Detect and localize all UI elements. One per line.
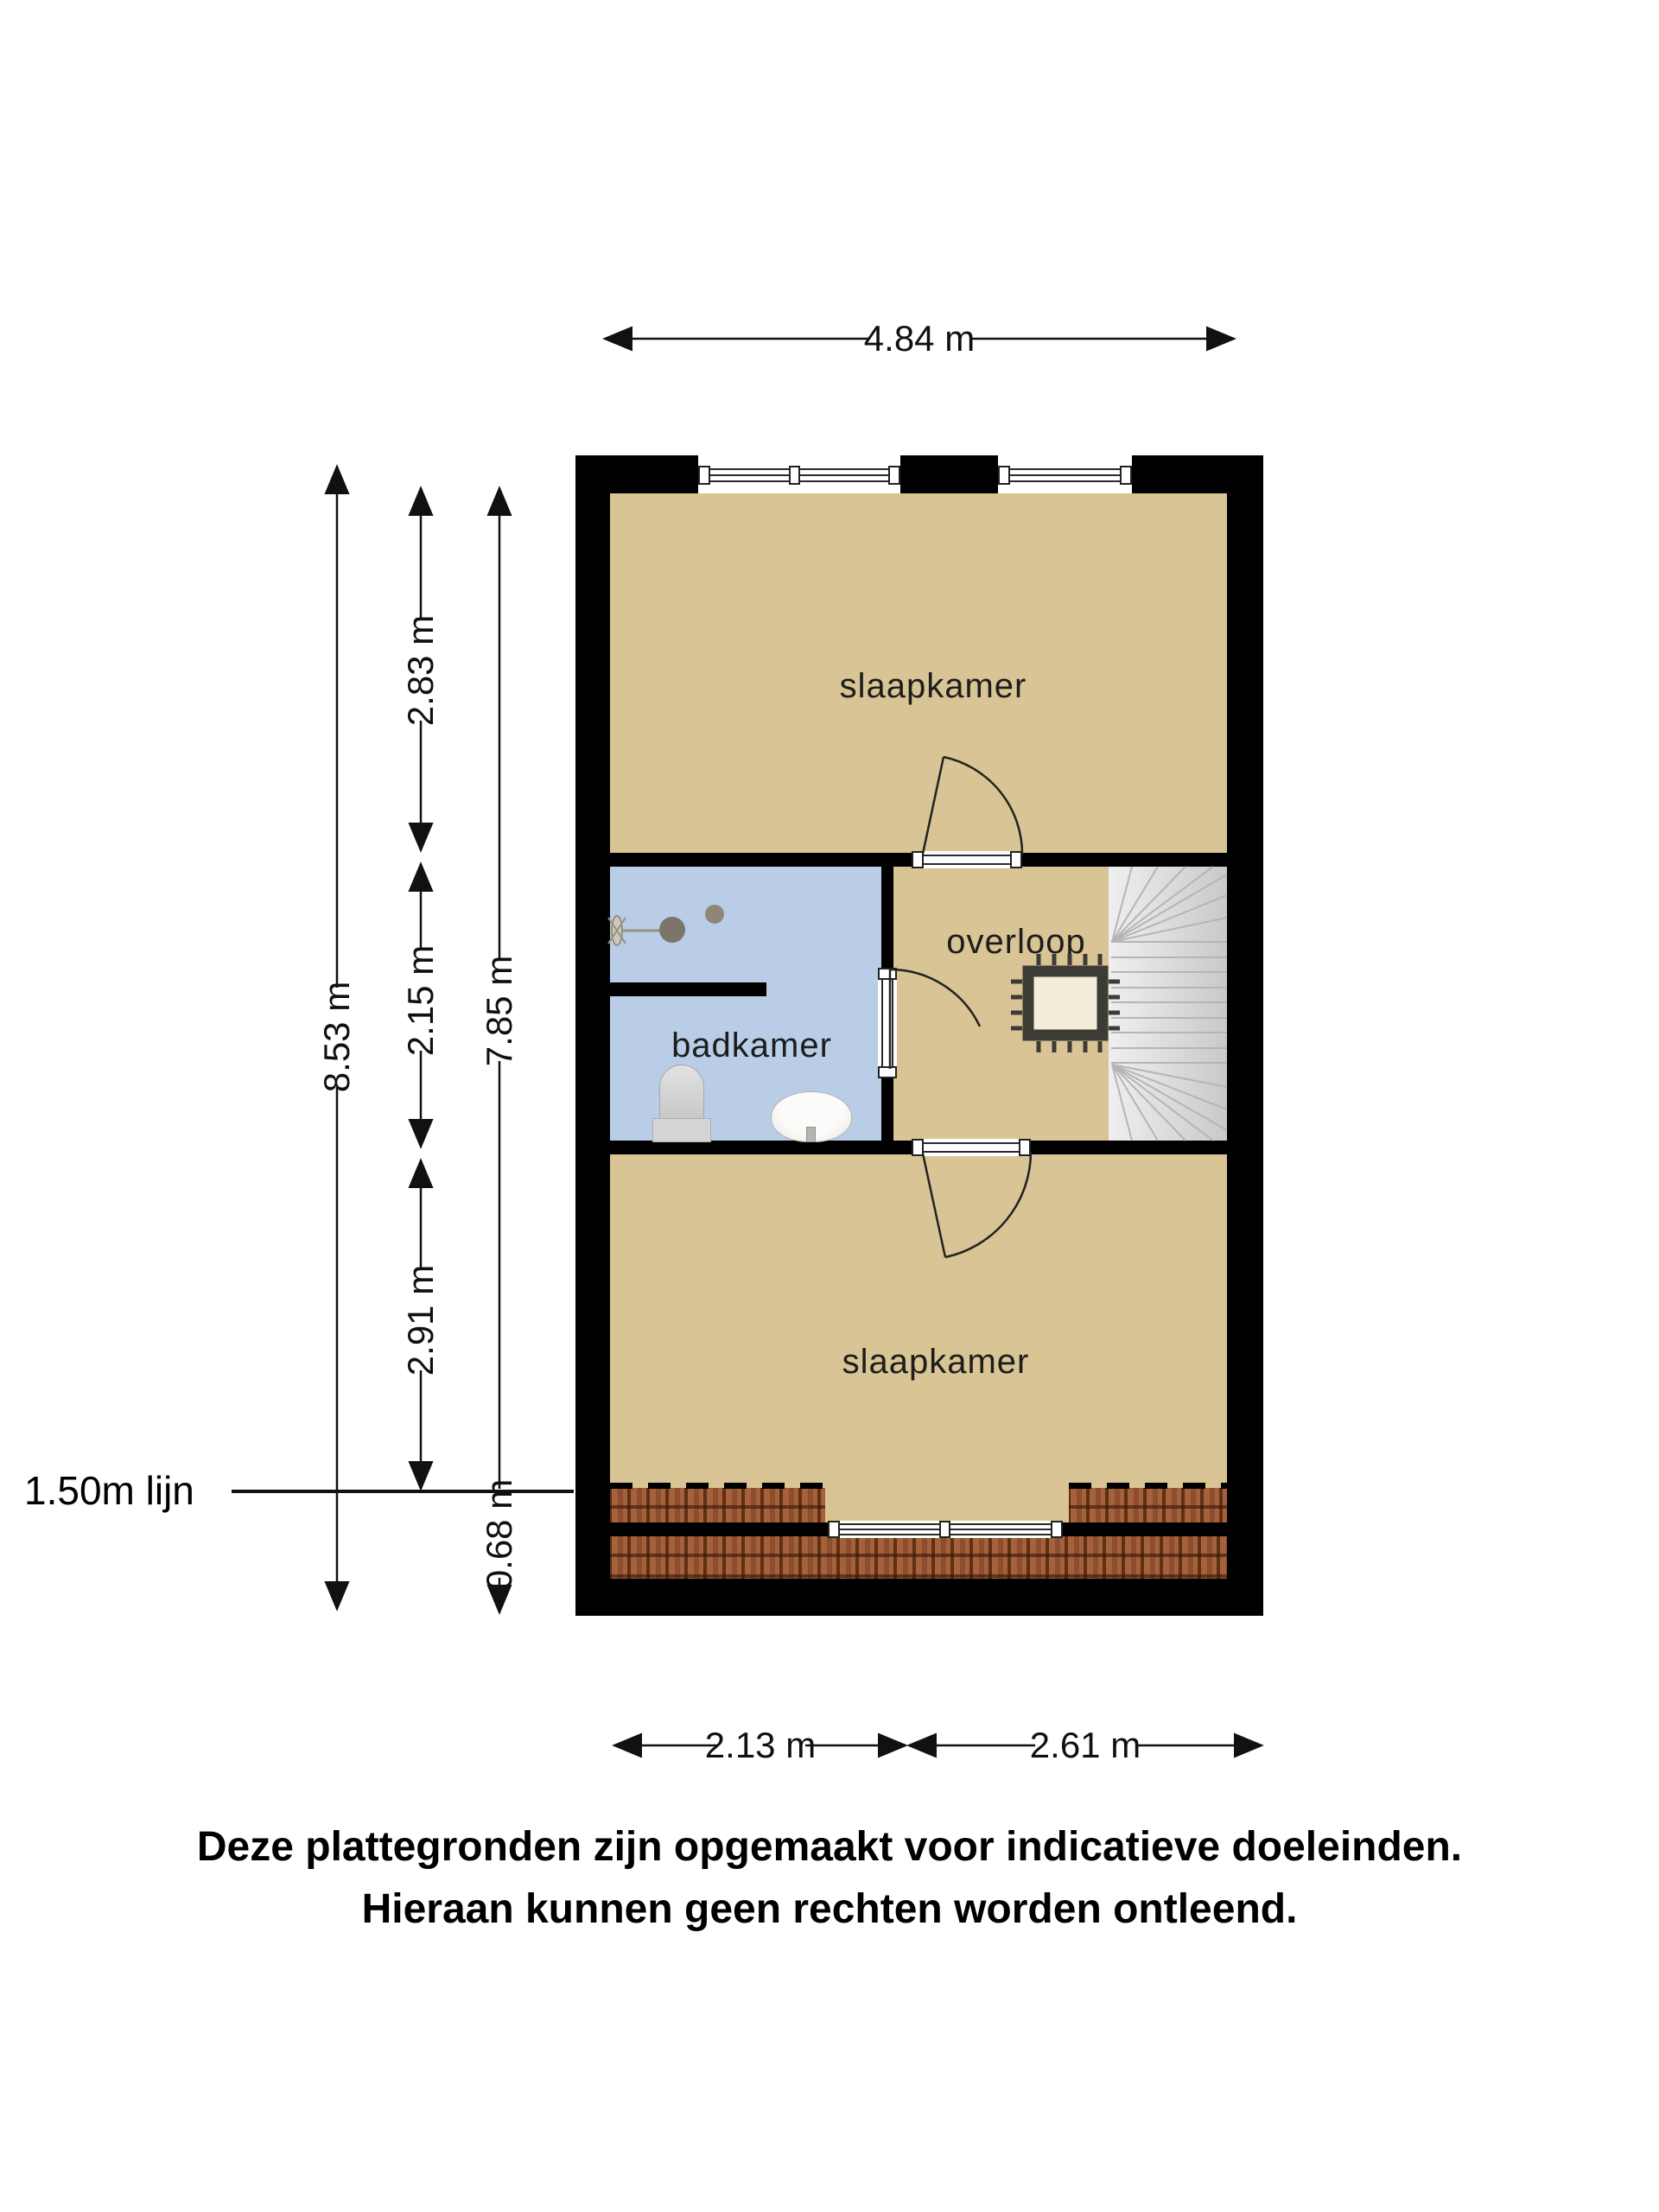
- room-label-bedroom-top: slaapkamer: [804, 667, 1063, 706]
- dim-inner-height: 7.85 m: [479, 946, 520, 1076]
- wall-shower-partition: [610, 982, 766, 996]
- room-label-bathroom: badkamer: [639, 1027, 864, 1065]
- wall-top-middle-pier: [900, 455, 998, 493]
- toilet-icon: [659, 1065, 704, 1123]
- window-recess-floor: [825, 1488, 1069, 1522]
- door-opening-bedroom-top: [912, 851, 1022, 868]
- disclaimer-line-1: Deze plattegronden zijn opgemaakt voor i…: [0, 1823, 1659, 1871]
- dim-bottom-offset: 0.68 m: [479, 1470, 520, 1599]
- disclaimer-line-2: Hieraan kunnen geen rechten worden ontle…: [0, 1885, 1659, 1933]
- door-opening-bathroom: [878, 968, 897, 1078]
- window-top-right: [998, 455, 1132, 493]
- wall-left: [575, 455, 610, 1616]
- bedroom-bottom-floor: [610, 1154, 1227, 1488]
- sink-tap-icon: [806, 1127, 816, 1142]
- roof-tiles-upper-right: [1069, 1488, 1227, 1522]
- floorplan-page: { "rooms": { "bedroom_top": "slaapkamer"…: [0, 0, 1659, 2212]
- reference-line-label: 1.50m lijn: [24, 1467, 194, 1514]
- dim-bottom-right: 2.61 m: [1003, 1725, 1167, 1766]
- wall-bottom: [575, 1579, 1263, 1616]
- room-label-bedroom-bottom: slaapkamer: [806, 1343, 1065, 1382]
- roof-dashed-line-right: [1069, 1483, 1227, 1489]
- wall-right: [1227, 455, 1263, 1616]
- landing-floor: [893, 867, 1109, 1141]
- dim-left-total: 8.53 m: [316, 968, 358, 1106]
- window-top-left: [698, 455, 900, 493]
- door-opening-bedroom-bottom: [912, 1139, 1031, 1156]
- stairs-area: [1109, 867, 1227, 1141]
- room-label-landing: overloop: [899, 923, 1133, 962]
- dim-top-width: 4.84 m: [837, 318, 1001, 359]
- dim-seg-3: 2.91 m: [400, 1255, 442, 1385]
- dim-bottom-left: 2.13 m: [678, 1725, 842, 1766]
- roof-tiles-lower: [610, 1536, 1227, 1579]
- toilet-tank-icon: [652, 1118, 711, 1142]
- dim-seg-2: 2.15 m: [400, 936, 442, 1065]
- window-bottom: [828, 1521, 1063, 1538]
- dim-seg-1: 2.83 m: [400, 606, 442, 735]
- roof-dashed-line-left: [610, 1483, 825, 1489]
- roof-tiles-upper-left: [610, 1488, 825, 1522]
